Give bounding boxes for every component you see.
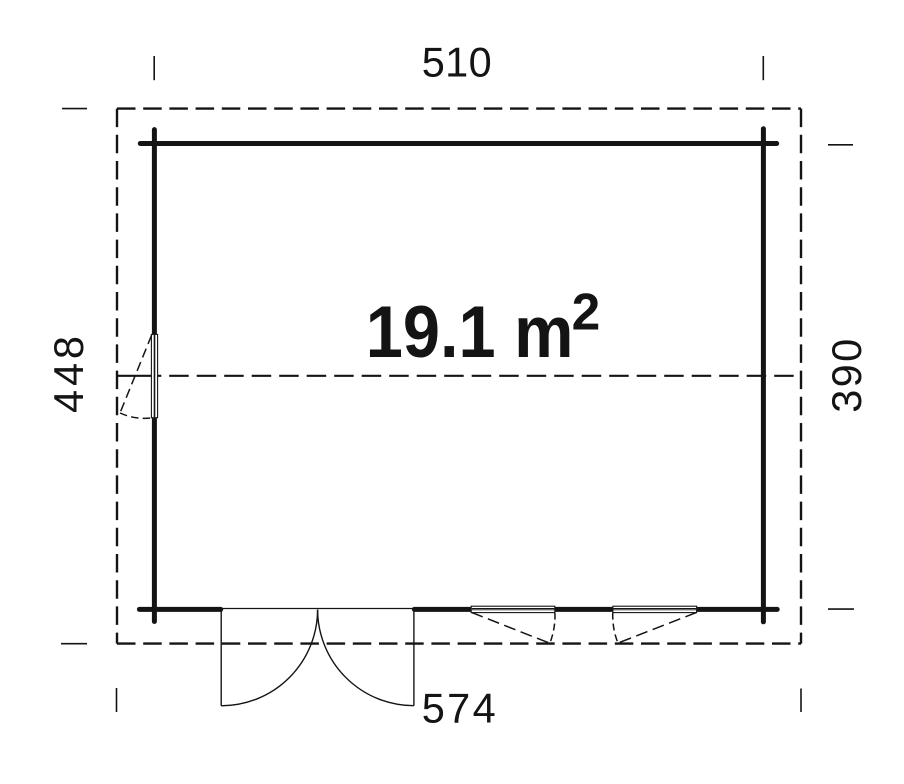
svg-text:2: 2 xyxy=(572,282,601,340)
svg-text:574: 574 xyxy=(422,684,496,731)
svg-text:390: 390 xyxy=(823,339,870,413)
svg-text:448: 448 xyxy=(45,336,92,413)
svg-text:510: 510 xyxy=(422,38,492,85)
svg-text:19.1 m: 19.1 m xyxy=(366,290,574,373)
